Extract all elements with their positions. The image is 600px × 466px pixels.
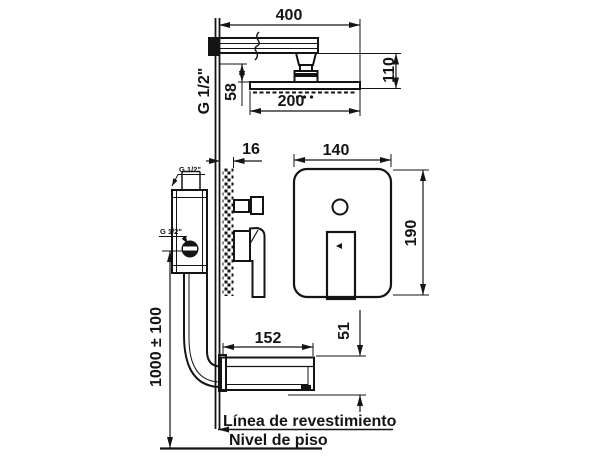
dim-spout-height-label: 51 [336,322,353,340]
head-plate [250,82,360,89]
diverter-knob-side [234,200,249,212]
dim-plate-height-label: 190 [403,220,420,247]
dim-spout-height: 51 [288,310,366,412]
dim-plate-width: 140 [294,142,391,167]
floor-line-label: Nivel de piso [229,432,328,449]
dim-arm-length-label: 400 [276,7,303,24]
dim-arm-clearance: 58 [223,64,251,106]
concealed-valve-body [172,172,207,274]
spout-aerator [301,385,311,390]
valve-inlet-thread-label: G 1/2" [160,227,182,236]
shower-arm [208,32,318,64]
arm-thread-label: G 1/2" [196,68,213,115]
finish-line-callout: Línea de revestimiento [218,413,397,430]
dim-plate-height: 190 [393,170,429,295]
spout-body [221,358,314,391]
shower-installation-diagram: 400 110 200 58 G 1/2" 16 [0,0,600,466]
technical-drawing: 400 110 200 58 G 1/2" 16 [0,0,600,466]
handle-marker [336,243,342,249]
finish-layer-hatch [223,168,234,296]
dim-arm-clearance-label: 58 [223,83,240,101]
spout [219,355,314,391]
arm-break-symbol [255,32,259,60]
floor-line-callout: Nivel de piso [160,432,328,449]
handle-lever-side [250,228,265,297]
trim-plate-front [294,169,391,299]
trim-side-view [234,197,265,297]
dim-plate-width-label: 140 [323,142,350,159]
dim-install-height: 1000 ± 100 [148,251,198,448]
dim-spout-length-label: 152 [255,330,282,347]
shower-head [250,53,360,99]
handle-base-side [234,231,250,261]
dim-spout-length: 152 [223,330,313,356]
dim-install-height-label: 1000 ± 100 [148,307,165,387]
finish-line-label: Línea de revestimiento [223,413,397,430]
diverter-button [333,200,348,215]
dim-head-drop-label: 110 [381,57,398,83]
valve-top-thread-label: G 1/2" [179,165,201,174]
dim-head-width: 200 [250,91,360,115]
handle-front [327,232,355,299]
dim-finish-thickness: 16 [206,141,262,168]
valve-inlet-thread-callout: G 1/2" [159,227,188,244]
dim-head-width-label: 200 [278,93,305,110]
dim-finish-thickness-label: 16 [242,141,260,158]
